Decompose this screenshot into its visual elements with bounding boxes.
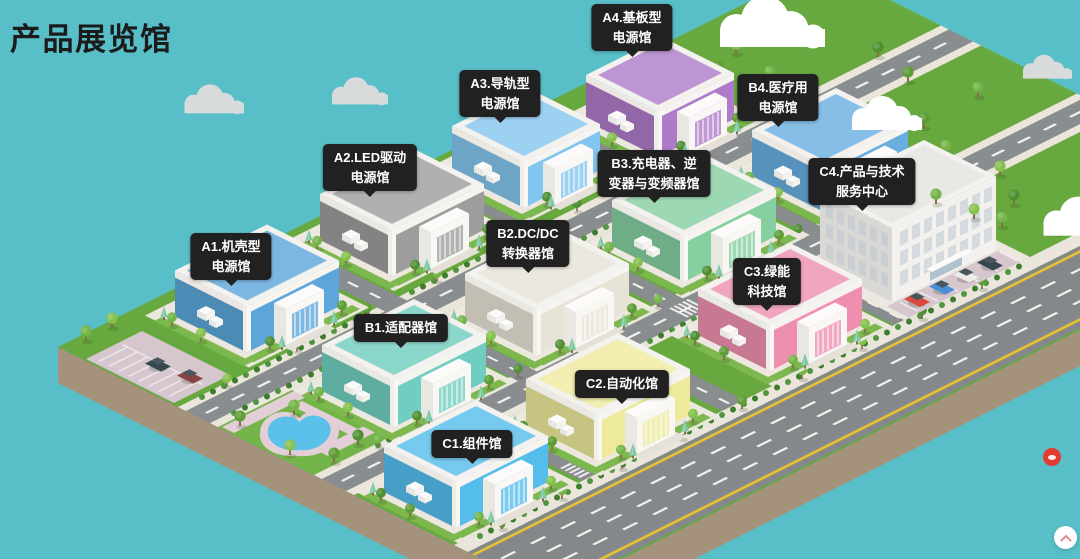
hall-label-a4[interactable]: A4.基板型电源馆 (591, 4, 672, 51)
hall-label-a2[interactable]: A2.LED驱动电源馆 (323, 144, 417, 191)
hall-label-a3[interactable]: A3.导轨型电源馆 (459, 70, 540, 117)
hall-label-line: A3.导轨型 (470, 74, 529, 94)
exhibition-map-page: 产品展览馆 A1.机壳型电源馆A2.LED驱动电源馆A3.导轨型电源馆A4.基板… (0, 0, 1080, 559)
hall-label-line: C1.组件馆 (442, 434, 501, 454)
chevron-up-icon (1060, 534, 1072, 542)
hall-label-c2[interactable]: C2.自动化馆 (575, 370, 669, 398)
hall-label-line: B2.DC/DC (497, 224, 558, 244)
hall-label-line: A4.基板型 (602, 8, 661, 28)
hall-label-line: B1.适配器馆 (365, 318, 437, 338)
hall-label-c1[interactable]: C1.组件馆 (431, 430, 512, 458)
hall-label-line: A2.LED驱动 (334, 148, 406, 168)
page-title: 产品展览馆 (10, 14, 173, 59)
hall-label-line: C2.自动化馆 (586, 374, 658, 394)
hall-label-a1[interactable]: A1.机壳型电源馆 (190, 233, 271, 280)
hall-label-line: 服务中心 (819, 182, 904, 202)
hall-label-line: A1.机壳型 (201, 237, 260, 257)
hall-label-b2[interactable]: B2.DC/DC转换器馆 (486, 220, 569, 267)
hall-label-line: 科技馆 (744, 282, 790, 302)
hall-label-c4[interactable]: C4.产品与技术服务中心 (808, 158, 915, 205)
hall-label-b1[interactable]: B1.适配器馆 (354, 314, 448, 342)
red-floating-button[interactable] (1043, 448, 1061, 466)
hall-label-line: 电源馆 (602, 28, 661, 48)
hall-label-line: 转换器馆 (497, 244, 558, 264)
back-to-top-button[interactable] (1054, 526, 1077, 549)
hall-label-line: 电源馆 (334, 168, 406, 188)
hall-label-line: C4.产品与技术 (819, 162, 904, 182)
hall-label-line: 变器与变频器馆 (608, 174, 699, 194)
hall-label-line: 电源馆 (470, 94, 529, 114)
dot-icon (1048, 455, 1056, 460)
hall-label-line: 电源馆 (748, 98, 807, 118)
hall-label-line: C3.绿能 (744, 262, 790, 282)
hall-label-b4[interactable]: B4.医疗用电源馆 (737, 74, 818, 121)
hall-label-c3[interactable]: C3.绿能科技馆 (733, 258, 801, 305)
hall-label-b3[interactable]: B3.充电器、逆变器与变频器馆 (597, 150, 710, 197)
hall-label-line: B3.充电器、逆 (608, 154, 699, 174)
hall-label-line: 电源馆 (201, 257, 260, 277)
hall-label-line: B4.医疗用 (748, 78, 807, 98)
